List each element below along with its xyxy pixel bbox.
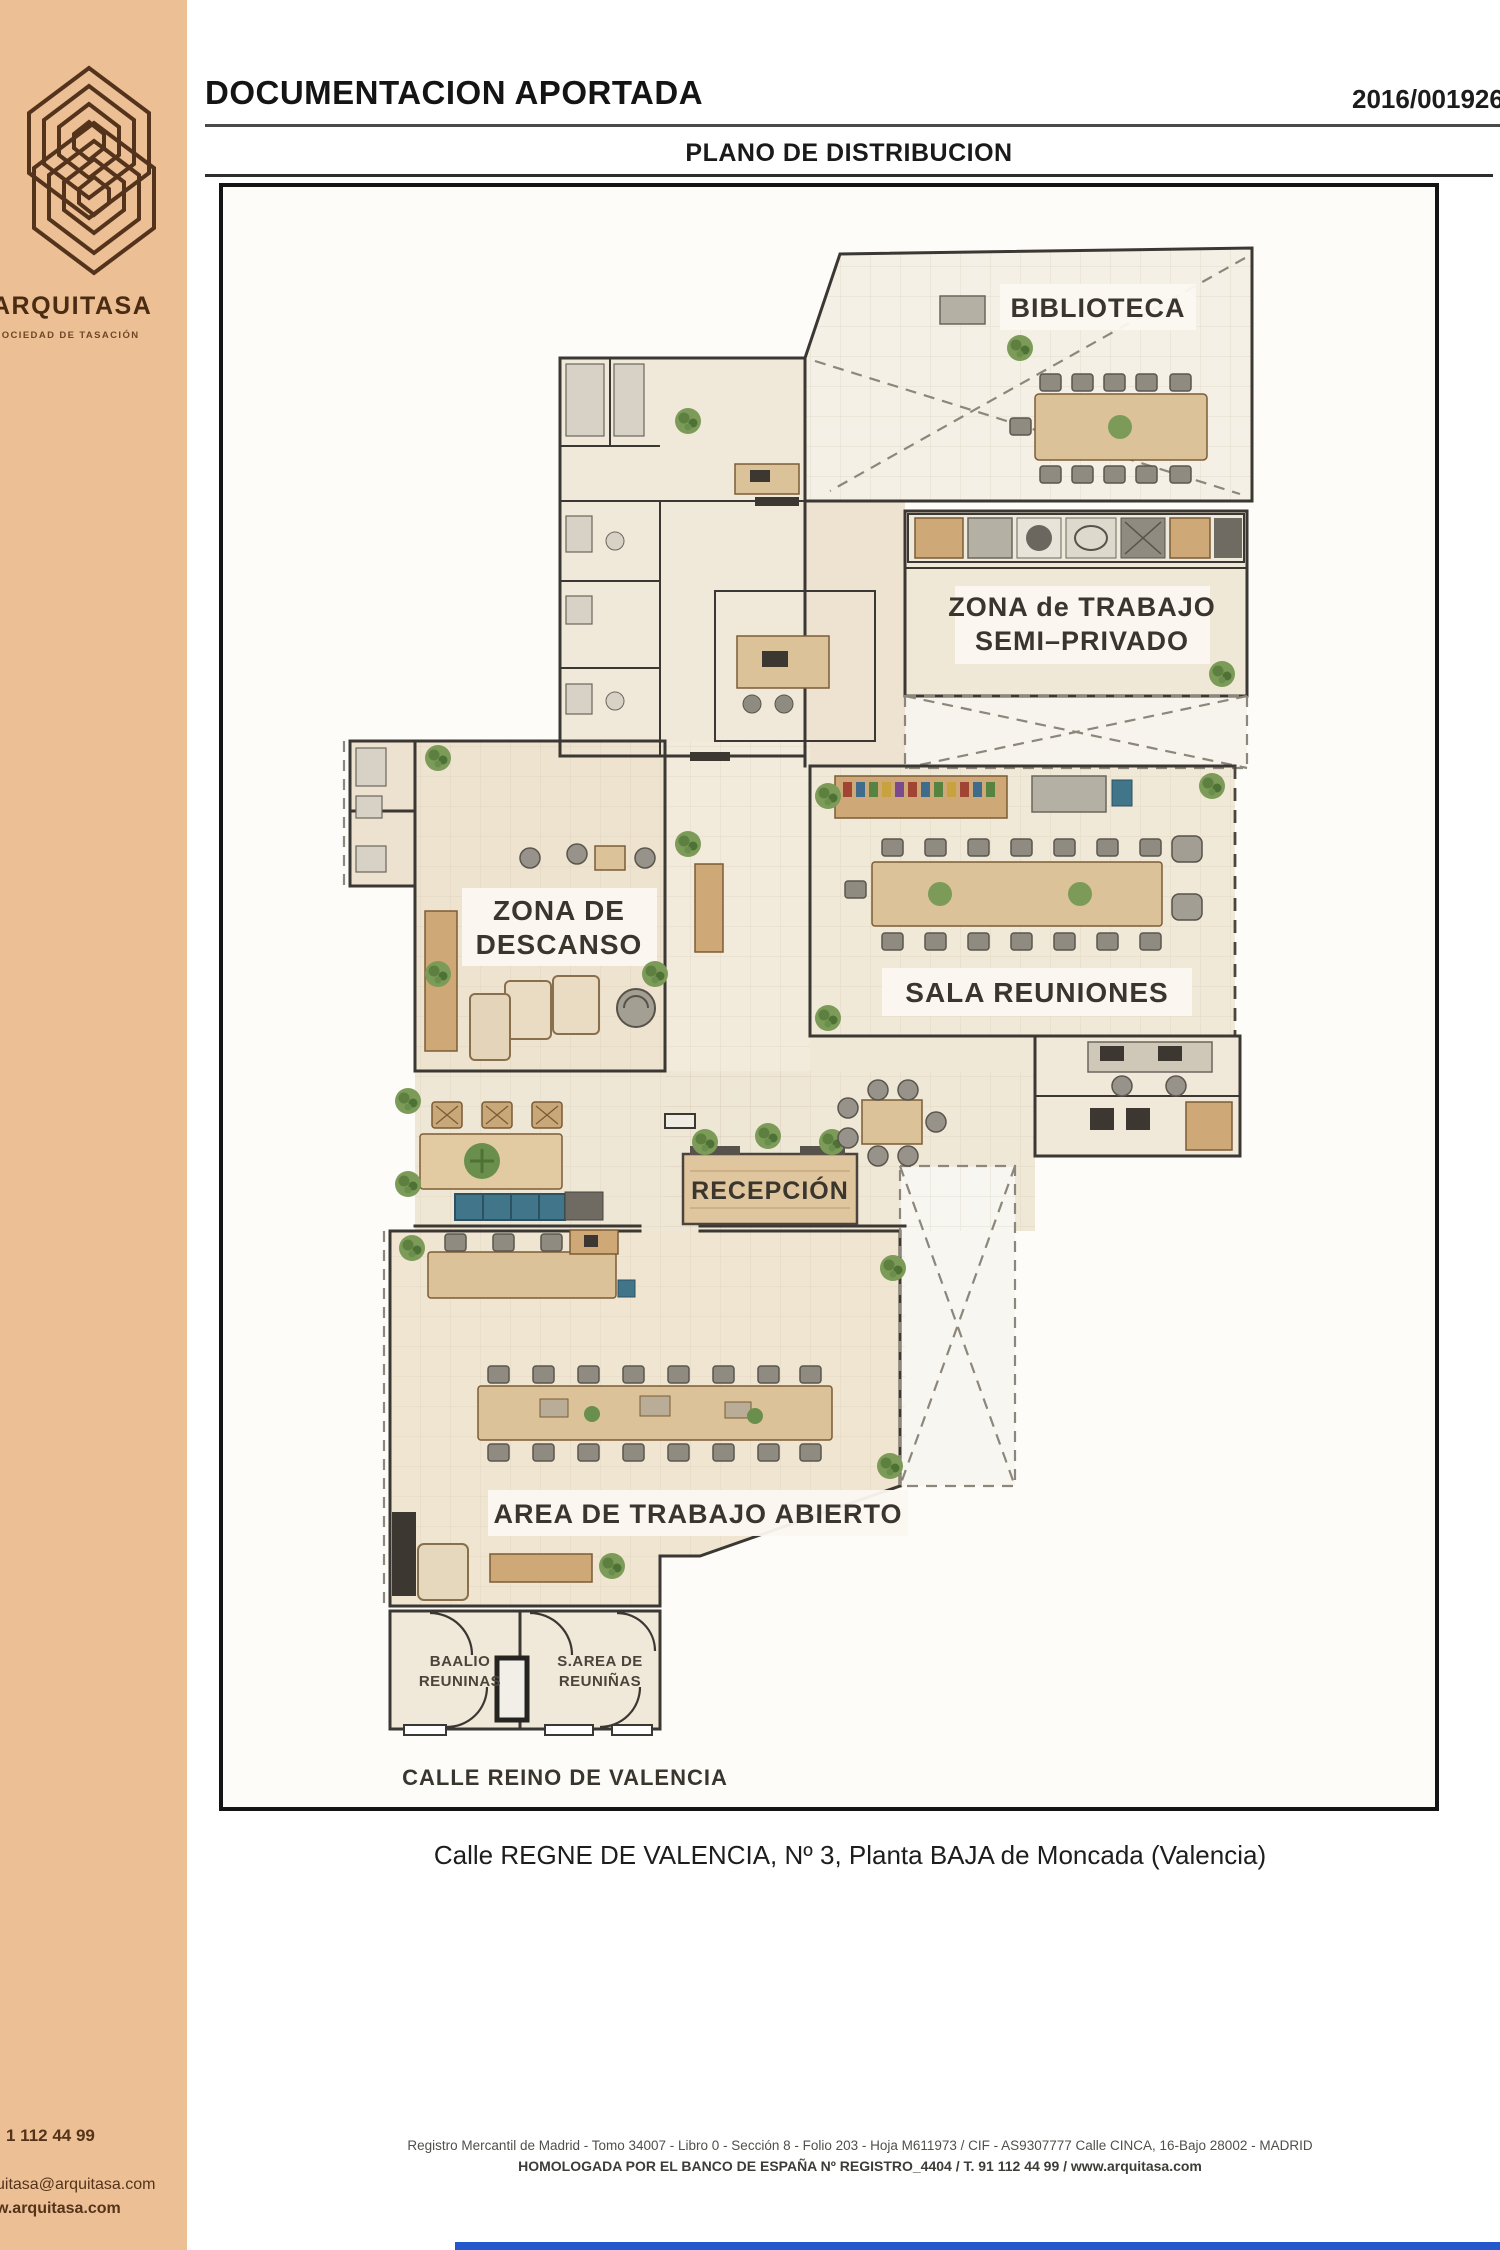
page-title: DOCUMENTACION APORTADA xyxy=(205,74,703,112)
brand-sidebar: ARQUITASA SOCIEDAD DE TASACIÓN 1 112 44 … xyxy=(0,0,187,2250)
label-sala-b-izq-2: REUNINAS xyxy=(419,1673,501,1690)
room-zona-trabajo: ZONA de TRABAJO SEMI–PRIVADO xyxy=(908,514,1244,687)
floorplan-frame: BIBLIOTECA xyxy=(219,183,1439,1811)
footer-homologation-line: HOMOLOGADA POR EL BANCO DE ESPAÑA Nº REG… xyxy=(230,2158,1490,2174)
brand-name: ARQUITASA xyxy=(0,292,192,321)
email-address[interactable]: uitasa@arquitasa.com xyxy=(0,2176,155,2194)
label-area-trabajo: AREA DE TRABAJO ABIERTO xyxy=(493,1499,902,1529)
brand-subtitle: SOCIEDAD DE TASACIÓN xyxy=(0,330,204,341)
website-url[interactable]: w.arquitasa.com xyxy=(0,2200,121,2218)
phone-number: 1 112 44 99 xyxy=(6,2126,95,2146)
label-zona-descanso-2: DESCANSO xyxy=(476,929,643,960)
label-zona-trabajo-2: SEMI–PRIVADO xyxy=(975,626,1189,656)
plant-icon xyxy=(1007,335,1033,361)
floorplan-drawing: BIBLIOTECA xyxy=(223,187,1431,1795)
label-sala-b-der-2: REUNIÑAS xyxy=(559,1672,641,1690)
street-label: CALLE REINO DE VALENCIA xyxy=(402,1765,728,1790)
label-sala-reuniones: SALA REUNIONES xyxy=(905,977,1168,1008)
label-recepcion: RECEPCIÓN xyxy=(691,1175,849,1205)
header-rule xyxy=(205,124,1500,127)
label-sala-b-der-1: S.AREA DE xyxy=(557,1653,643,1670)
label-biblioteca: BIBLIOTECA xyxy=(1011,293,1186,323)
case-number: 2016/0019260 xyxy=(1352,84,1500,115)
label-zona-trabajo-1: ZONA de TRABAJO xyxy=(948,592,1216,622)
footer-registry-line: Registro Mercantil de Madrid - Tomo 3400… xyxy=(230,2138,1490,2153)
bottom-accent-bar xyxy=(455,2242,1500,2250)
label-zona-descanso-1: ZONA DE xyxy=(493,895,625,926)
document-page: ARQUITASA SOCIEDAD DE TASACIÓN 1 112 44 … xyxy=(0,0,1500,2250)
label-sala-b-izq-1: BAALIO xyxy=(430,1653,491,1670)
arquitasa-logo-icon xyxy=(4,58,179,283)
address-caption: Calle REGNE DE VALENCIA, Nº 3, Planta BA… xyxy=(240,1840,1460,1871)
page-subtitle: PLANO DE DISTRIBUCION xyxy=(205,139,1493,168)
subtitle-rule xyxy=(205,174,1493,177)
